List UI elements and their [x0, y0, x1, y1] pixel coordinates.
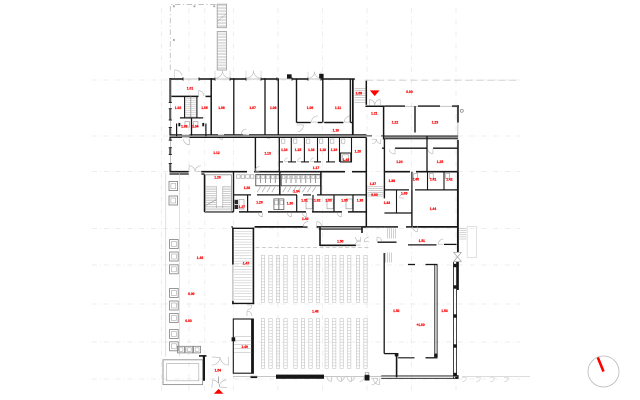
svg-text:+1.00: +1.00	[416, 323, 425, 327]
svg-text:1.52: 1.52	[393, 309, 400, 313]
svg-text:1.26: 1.26	[214, 175, 221, 179]
svg-text:1.51: 1.51	[419, 239, 426, 243]
svg-text:1.27: 1.27	[239, 205, 246, 209]
svg-text:1.10: 1.10	[333, 128, 340, 132]
svg-text:1.40: 1.40	[413, 177, 420, 181]
svg-text:1.08: 1.08	[270, 106, 277, 110]
svg-text:1.03: 1.03	[181, 125, 188, 129]
svg-text:0.00: 0.00	[185, 319, 192, 323]
svg-text:1.20: 1.20	[355, 150, 362, 154]
svg-text:1.45: 1.45	[343, 158, 350, 162]
svg-text:1.04: 1.04	[192, 125, 199, 129]
svg-text:1.09: 1.09	[307, 106, 314, 110]
svg-text:1.24: 1.24	[396, 160, 403, 164]
svg-text:1.13: 1.13	[264, 152, 271, 156]
svg-text:1.02: 1.02	[175, 106, 182, 110]
svg-text:1.28: 1.28	[244, 186, 251, 190]
svg-text:1.15: 1.15	[295, 148, 302, 152]
svg-text:1.06: 1.06	[218, 106, 225, 110]
svg-text:1.48: 1.48	[312, 310, 319, 314]
svg-text:1.33: 1.33	[325, 199, 332, 203]
svg-text:1.40: 1.40	[302, 217, 309, 221]
svg-text:1.01: 1.01	[187, 87, 194, 91]
svg-text:1.41: 1.41	[430, 177, 437, 181]
svg-text:1.21: 1.21	[371, 112, 378, 116]
svg-text:1.38: 1.38	[388, 179, 395, 183]
svg-text:1.34: 1.34	[293, 189, 300, 193]
svg-text:1.18: 1.18	[320, 148, 327, 152]
svg-text:1.19: 1.19	[331, 148, 338, 152]
svg-text:1.37: 1.37	[370, 182, 377, 186]
svg-text:1.47: 1.47	[243, 261, 250, 265]
svg-text:1.54: 1.54	[215, 369, 222, 373]
svg-text:1.36: 1.36	[357, 199, 364, 203]
svg-text:1.23: 1.23	[432, 120, 439, 124]
svg-text:1.53: 1.53	[441, 309, 448, 313]
svg-text:0.00: 0.00	[371, 193, 378, 197]
svg-text:1.11: 1.11	[335, 106, 341, 110]
svg-text:1.55: 1.55	[356, 92, 363, 96]
svg-text:0.00: 0.00	[406, 90, 413, 94]
svg-text:1.43: 1.43	[384, 201, 391, 205]
svg-text:1.22: 1.22	[392, 121, 399, 125]
svg-text:1.42: 1.42	[446, 177, 453, 181]
svg-text:1.39: 1.39	[401, 192, 408, 196]
svg-text:1.32: 1.32	[314, 199, 321, 203]
svg-text:1.30: 1.30	[287, 202, 294, 206]
svg-text:1.44: 1.44	[430, 207, 437, 211]
svg-text:1.05: 1.05	[201, 106, 208, 110]
svg-text:0.00: 0.00	[188, 292, 195, 296]
svg-text:1.46: 1.46	[197, 256, 204, 260]
svg-text:1.16: 1.16	[308, 148, 315, 152]
svg-text:1.35: 1.35	[341, 199, 348, 203]
svg-text:1.25: 1.25	[437, 160, 444, 164]
svg-text:1.50: 1.50	[337, 239, 344, 243]
svg-text:1.31: 1.31	[301, 199, 308, 203]
svg-text:1.29: 1.29	[256, 201, 263, 205]
svg-text:1.07: 1.07	[249, 106, 256, 110]
svg-text:1.17: 1.17	[313, 166, 320, 170]
svg-text:1.12: 1.12	[213, 151, 220, 155]
svg-text:1.14: 1.14	[281, 148, 288, 152]
svg-text:1.49: 1.49	[241, 345, 248, 349]
